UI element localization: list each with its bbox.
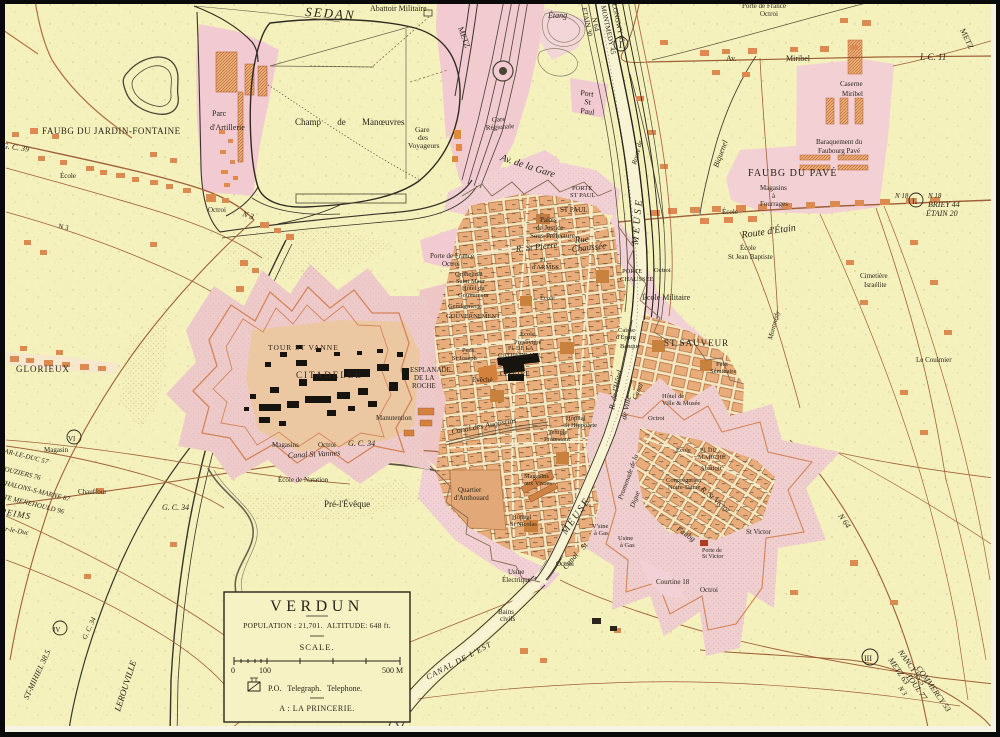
svg-text:N 18: N 18 — [894, 192, 909, 200]
svg-text:Quartier: Quartier — [458, 486, 482, 494]
svg-text:VERDUN: VERDUN — [270, 598, 364, 615]
svg-text:Caisse: Caisse — [618, 327, 635, 334]
svg-text:CATHÉDRALE: CATHÉDRALE — [498, 351, 541, 359]
svg-text:IV: IV — [53, 626, 60, 634]
svg-text:ESPLANADE: ESPLANADE — [410, 366, 451, 374]
svg-text:Gendarmerie: Gendarmerie — [448, 303, 482, 310]
svg-text:Congrégation: Congrégation — [666, 477, 702, 484]
svg-text:St Victor: St Victor — [702, 554, 723, 560]
svg-text:Israélite: Israélite — [864, 281, 887, 289]
svg-text:Électrique: Électrique — [502, 576, 531, 584]
svg-text:Hôpital: Hôpital — [512, 514, 532, 521]
svg-text:ST PAUL: ST PAUL — [560, 206, 587, 214]
svg-text:Porte de France: Porte de France — [430, 252, 474, 260]
svg-text:V'sine: V'sine — [592, 523, 608, 530]
svg-text:d'Anthouard: d'Anthouard — [454, 494, 489, 502]
svg-text:Étang: Étang — [547, 10, 567, 20]
svg-text:Cimetière: Cimetière — [860, 272, 888, 280]
svg-text:P.O. Telegraph. Telephone.: P.O. Telegraph. Telephone. — [268, 684, 362, 693]
svg-text:à Gas: à Gas — [594, 530, 609, 537]
svg-text:Av.: Av. — [726, 54, 737, 63]
svg-text:100: 100 — [259, 666, 271, 675]
svg-text:Octroi: Octroi — [760, 10, 778, 18]
svg-text:I: I — [619, 40, 622, 50]
svg-text:Champ de Manœuvres: Champ de Manœuvres — [295, 117, 405, 127]
svg-text:PORTE: PORTE — [622, 268, 642, 275]
svg-text:MARCHÉ: MARCHÉ — [698, 453, 726, 461]
svg-text:École: École — [540, 294, 555, 302]
svg-text:Voyageurs: Voyageurs — [408, 141, 440, 150]
svg-text:d'ARMES: d'ARMES — [532, 264, 559, 271]
svg-text:Ville & Musée: Ville & Musée — [662, 400, 700, 407]
svg-text:Octroi: Octroi — [654, 267, 671, 274]
svg-text:Chauffour: Chauffour — [78, 488, 107, 496]
svg-text:II: II — [912, 197, 918, 206]
svg-text:FAUBG DU PAVÉ: FAUBG DU PAVÉ — [748, 167, 838, 179]
svg-text:École de Natation: École de Natation — [278, 476, 329, 484]
svg-text:Protestant: Protestant — [544, 436, 570, 443]
svg-text:St Joseph: St Joseph — [452, 355, 477, 362]
svg-text:Banque: Banque — [620, 343, 640, 350]
svg-text:Magasins: Magasins — [524, 473, 549, 480]
svg-text:G. C. 34: G. C. 34 — [162, 503, 189, 512]
svg-text:à Gas: à Gas — [620, 542, 635, 549]
svg-text:École: École — [520, 330, 535, 338]
svg-text:ST SAUVEUR: ST SAUVEUR — [664, 338, 729, 348]
svg-text:St Jean Baptiste: St Jean Baptiste — [728, 253, 773, 261]
svg-text:Parc: Parc — [212, 109, 227, 118]
svg-text:Miribel: Miribel — [842, 90, 863, 98]
svg-text:Octroi: Octroi — [208, 206, 226, 214]
svg-text:Séminaire: Séminaire — [710, 368, 736, 375]
svg-text:CLOÎTRE: CLOÎTRE — [500, 370, 530, 378]
svg-text:GOUVERNEMENT: GOUVERNEMENT — [446, 313, 500, 320]
svg-text:St Nicolas: St Nicolas — [510, 521, 537, 528]
svg-text:TOUR ST VANNE: TOUR ST VANNE — [268, 343, 339, 352]
svg-text:École: École — [676, 446, 691, 454]
svg-text:Magasins: Magasins — [272, 441, 299, 449]
svg-text:III: III — [864, 654, 872, 663]
svg-text:Petit: Petit — [716, 361, 728, 368]
svg-text:Le Coulmier: Le Coulmier — [916, 356, 952, 364]
svg-text:Octroi: Octroi — [700, 586, 718, 594]
svg-text:Gouverneur: Gouverneur — [458, 292, 490, 299]
svg-text:Palais: Palais — [540, 216, 557, 224]
svg-text:POPULATION : 21,701. ALTITUDE: POPULATION : 21,701. ALTITUDE: 648 ft. — [243, 621, 391, 630]
svg-text:A : LA PRINCERIE.: A : LA PRINCERIE. — [279, 704, 355, 713]
svg-text:DE LA: DE LA — [414, 374, 434, 382]
svg-text:ST PAUL: ST PAUL — [570, 192, 595, 199]
svg-text:aux Vivres: aux Vivres — [524, 480, 552, 487]
svg-text:St Hippolyte: St Hippolyte — [564, 422, 597, 429]
svg-text:Usine: Usine — [618, 535, 633, 542]
svg-text:d'Artillerie: d'Artillerie — [210, 123, 245, 132]
svg-text:Presbytère: Presbytère — [514, 339, 542, 346]
svg-text:Orphelinat: Orphelinat — [455, 271, 483, 278]
svg-text:CHAUSSÉE: CHAUSSÉE — [620, 275, 654, 283]
svg-text:Pré-l'Évêque: Pré-l'Évêque — [324, 499, 370, 509]
svg-text:Caserne: Caserne — [840, 80, 863, 88]
svg-text:École Militaire: École Militaire — [642, 292, 691, 302]
svg-text:Notre-Dame: Notre-Dame — [668, 484, 701, 491]
svg-text:Miribel: Miribel — [786, 54, 811, 63]
svg-text:Octroi: Octroi — [648, 415, 665, 422]
svg-text:d'Éparg: d'Éparg — [616, 333, 637, 341]
svg-text:Octroi: Octroi — [442, 260, 460, 268]
svg-text:civils: civils — [500, 615, 515, 623]
svg-text:500 M: 500 M — [382, 666, 403, 675]
svg-text:de Justice: de Justice — [536, 224, 563, 232]
svg-text:St Victor: St Victor — [746, 528, 772, 536]
svg-text:CITADELLE: CITADELLE — [296, 370, 363, 380]
svg-text:Abattoir Militaire: Abattoir Militaire — [370, 4, 427, 13]
svg-text:BRIEY 44: BRIEY 44 — [928, 200, 960, 209]
svg-text:Usine: Usine — [508, 568, 524, 576]
svg-text:G. C. 34: G. C. 34 — [348, 439, 375, 448]
svg-text:FAUBG DU JARDIN-FONTAINE: FAUBG DU JARDIN-FONTAINE — [42, 126, 181, 136]
svg-text:Saint Maur: Saint Maur — [456, 278, 486, 285]
svg-text:Temple: Temple — [548, 429, 568, 436]
svg-text:Pl.: Pl. — [540, 257, 547, 264]
svg-text:ROCHE: ROCHE — [412, 382, 436, 390]
svg-text:École: École — [60, 172, 76, 180]
svg-text:Courtine 18: Courtine 18 — [656, 578, 690, 586]
svg-text:GLORIEUX: GLORIEUX — [16, 364, 70, 374]
svg-text:Hôtel de: Hôtel de — [662, 393, 684, 400]
svg-text:0: 0 — [231, 666, 235, 675]
svg-text:Abattoir: Abattoir — [700, 465, 722, 472]
svg-text:Fourrages: Fourrages — [760, 200, 788, 208]
svg-text:N 18: N 18 — [927, 192, 942, 200]
svg-text:Baraquement du: Baraquement du — [816, 138, 863, 146]
svg-text:Magasins: Magasins — [760, 184, 787, 192]
svg-text:PORTE: PORTE — [572, 185, 592, 192]
svg-text:ÉTAIN 20: ÉTAIN 20 — [925, 208, 958, 218]
svg-text:École: École — [722, 208, 738, 216]
svg-text:Pens.: Pens. — [462, 347, 476, 354]
svg-text:Faubourg Pavé: Faubourg Pavé — [818, 147, 860, 155]
svg-text:SCALE.: SCALE. — [299, 642, 334, 652]
svg-text:Hôtel du: Hôtel du — [462, 285, 485, 292]
svg-text:Manutention: Manutention — [376, 414, 412, 422]
svg-text:Hôpital: Hôpital — [566, 415, 586, 422]
svg-text:Évêché: Évêché — [472, 376, 493, 384]
svg-text:Magasin: Magasin — [44, 446, 69, 454]
svg-text:École: École — [740, 244, 756, 252]
svg-text:VI: VI — [68, 435, 76, 443]
svg-text:I. C. 11: I. C. 11 — [919, 52, 946, 62]
svg-text:Sous-Préfecture: Sous-Préfecture — [530, 232, 575, 240]
